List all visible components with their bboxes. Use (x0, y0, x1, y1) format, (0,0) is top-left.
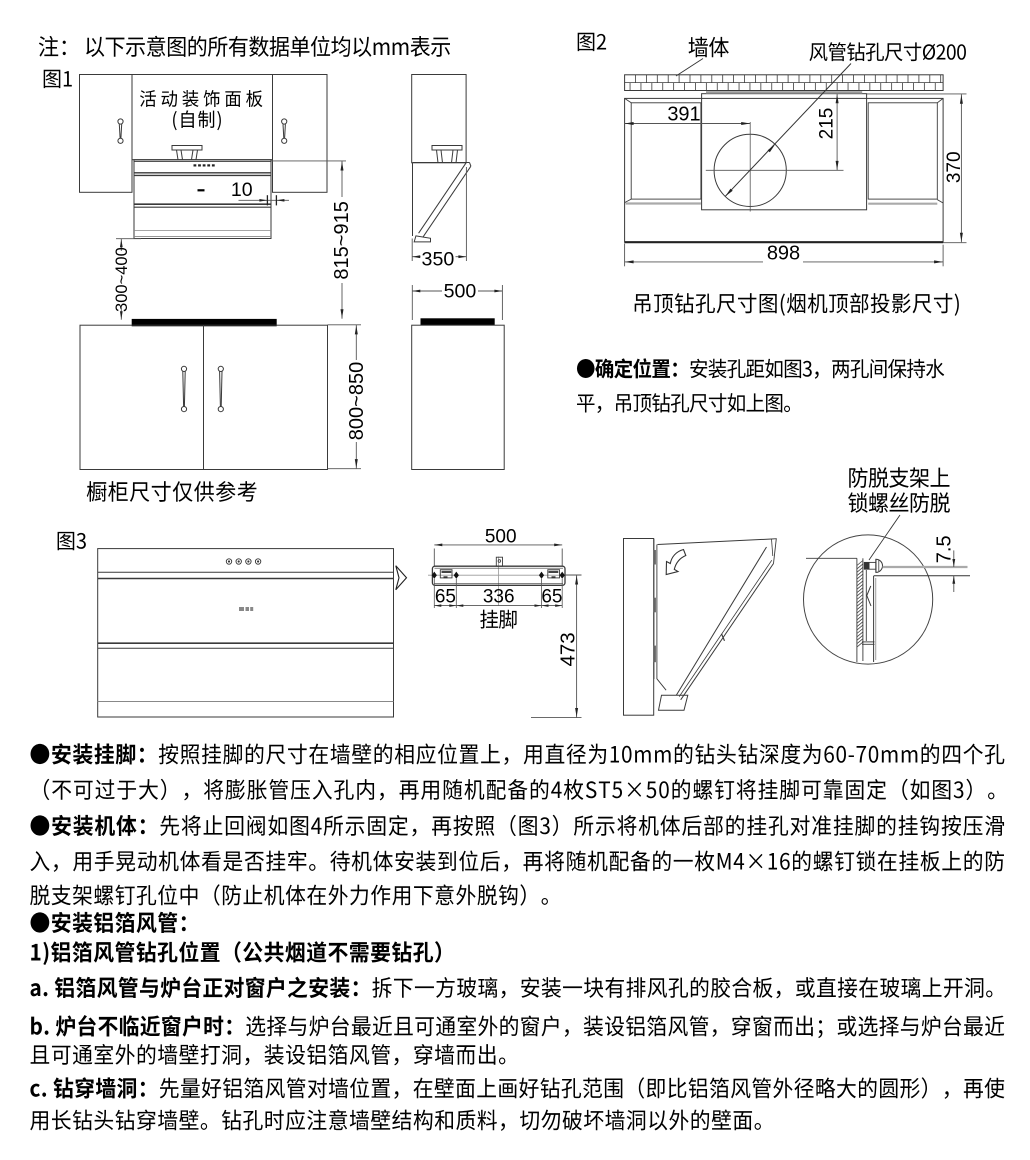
svg-text:215: 215 (817, 108, 838, 140)
svg-text:336: 336 (483, 587, 515, 608)
svg-text:370: 370 (944, 151, 965, 183)
svg-text:815~915: 815~915 (331, 201, 353, 279)
svg-text:7.5: 7.5 (933, 535, 955, 563)
svg-text:65: 65 (541, 587, 562, 608)
svg-text:391: 391 (667, 104, 700, 126)
svg-text:350: 350 (422, 248, 455, 270)
svg-text:500: 500 (444, 280, 477, 302)
svg-text:500: 500 (485, 526, 517, 547)
svg-text:473: 473 (557, 632, 580, 666)
svg-text:300~400: 300~400 (113, 247, 131, 312)
svg-text:65: 65 (435, 587, 456, 608)
svg-text:800~850: 800~850 (346, 362, 368, 440)
svg-text:898: 898 (767, 243, 800, 265)
svg-text:10: 10 (231, 179, 253, 201)
